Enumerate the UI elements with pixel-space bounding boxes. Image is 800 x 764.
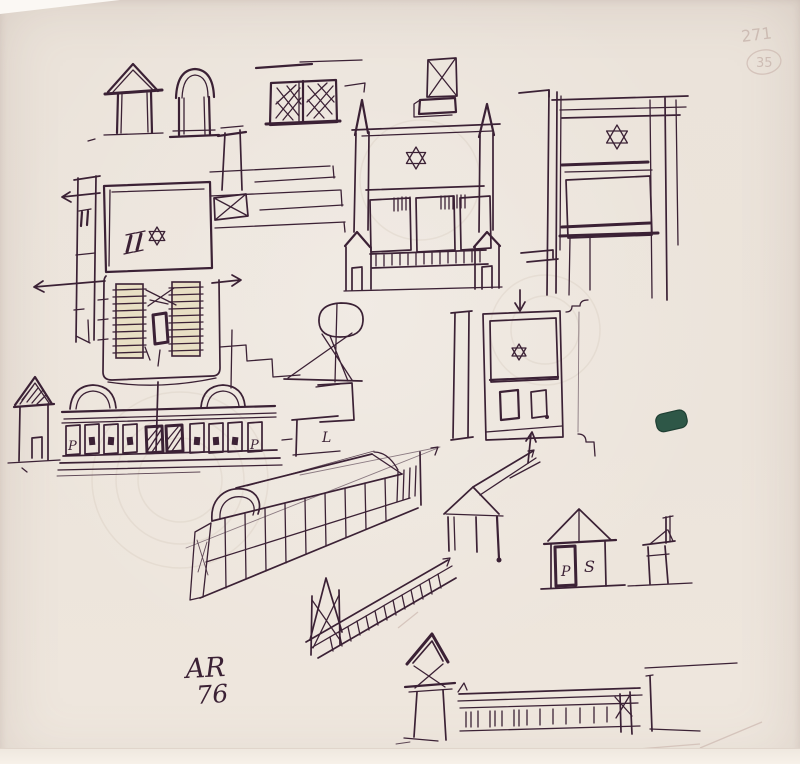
pencil-page-annotations: 271 35: [740, 23, 782, 76]
sketch-topright-facade: [519, 90, 688, 300]
paper-texture: [92, 120, 600, 568]
star-of-david-icon: [406, 147, 425, 164]
signature-year: 76: [195, 679, 229, 710]
arrow-left-icon: [62, 192, 100, 202]
plan-bimah: [153, 313, 168, 344]
sketch-bottom-tower: [396, 612, 455, 744]
sketch-colonnade: [458, 683, 642, 734]
signature: AR 76: [182, 652, 229, 710]
pencil-page-number: 271: [740, 23, 773, 46]
arrow-down-icon: [515, 290, 525, 311]
hut-letter-p: P: [560, 564, 571, 580]
arcade-letter-p-right: P: [249, 438, 259, 453]
wall-letter-l: L: [321, 430, 331, 446]
arrow-right-icon: [212, 275, 241, 286]
star-of-david-icon: [149, 227, 165, 245]
scanned-sketch-sheet: 271 35: [0, 0, 800, 764]
star-of-david-icon: [607, 125, 628, 143]
plan-seating-bank: [172, 282, 200, 356]
sketch-hatched-window: [256, 60, 362, 125]
sketch-arched-portal: [170, 69, 219, 137]
sketch-hut-ps: P S: [541, 509, 625, 589]
green-daub: [654, 409, 688, 434]
sketch-hut-small: [628, 516, 692, 586]
sketch-x-window: [345, 58, 457, 117]
sketch-midright-facade: [451, 290, 595, 478]
sketch-balloon-cone: [284, 303, 363, 422]
sketch-corner-lines: [540, 663, 762, 757]
plan-seating-bank: [116, 284, 143, 358]
sketch-gable-shelter: [444, 450, 536, 563]
sketch-left-sliver: [74, 176, 100, 343]
scan-edge-bottom: [0, 748, 800, 764]
sketch-drawing: 271 35: [0, 0, 800, 764]
sketch-plan-complex: [34, 126, 345, 452]
sketch-gabled-portal: [88, 64, 163, 141]
hut-letter-s: S: [584, 557, 595, 576]
pencil-circled-number: 35: [756, 56, 773, 71]
sketch-vaulted-hall: [186, 447, 440, 600]
arcade-letter-p-left: P: [67, 439, 77, 454]
